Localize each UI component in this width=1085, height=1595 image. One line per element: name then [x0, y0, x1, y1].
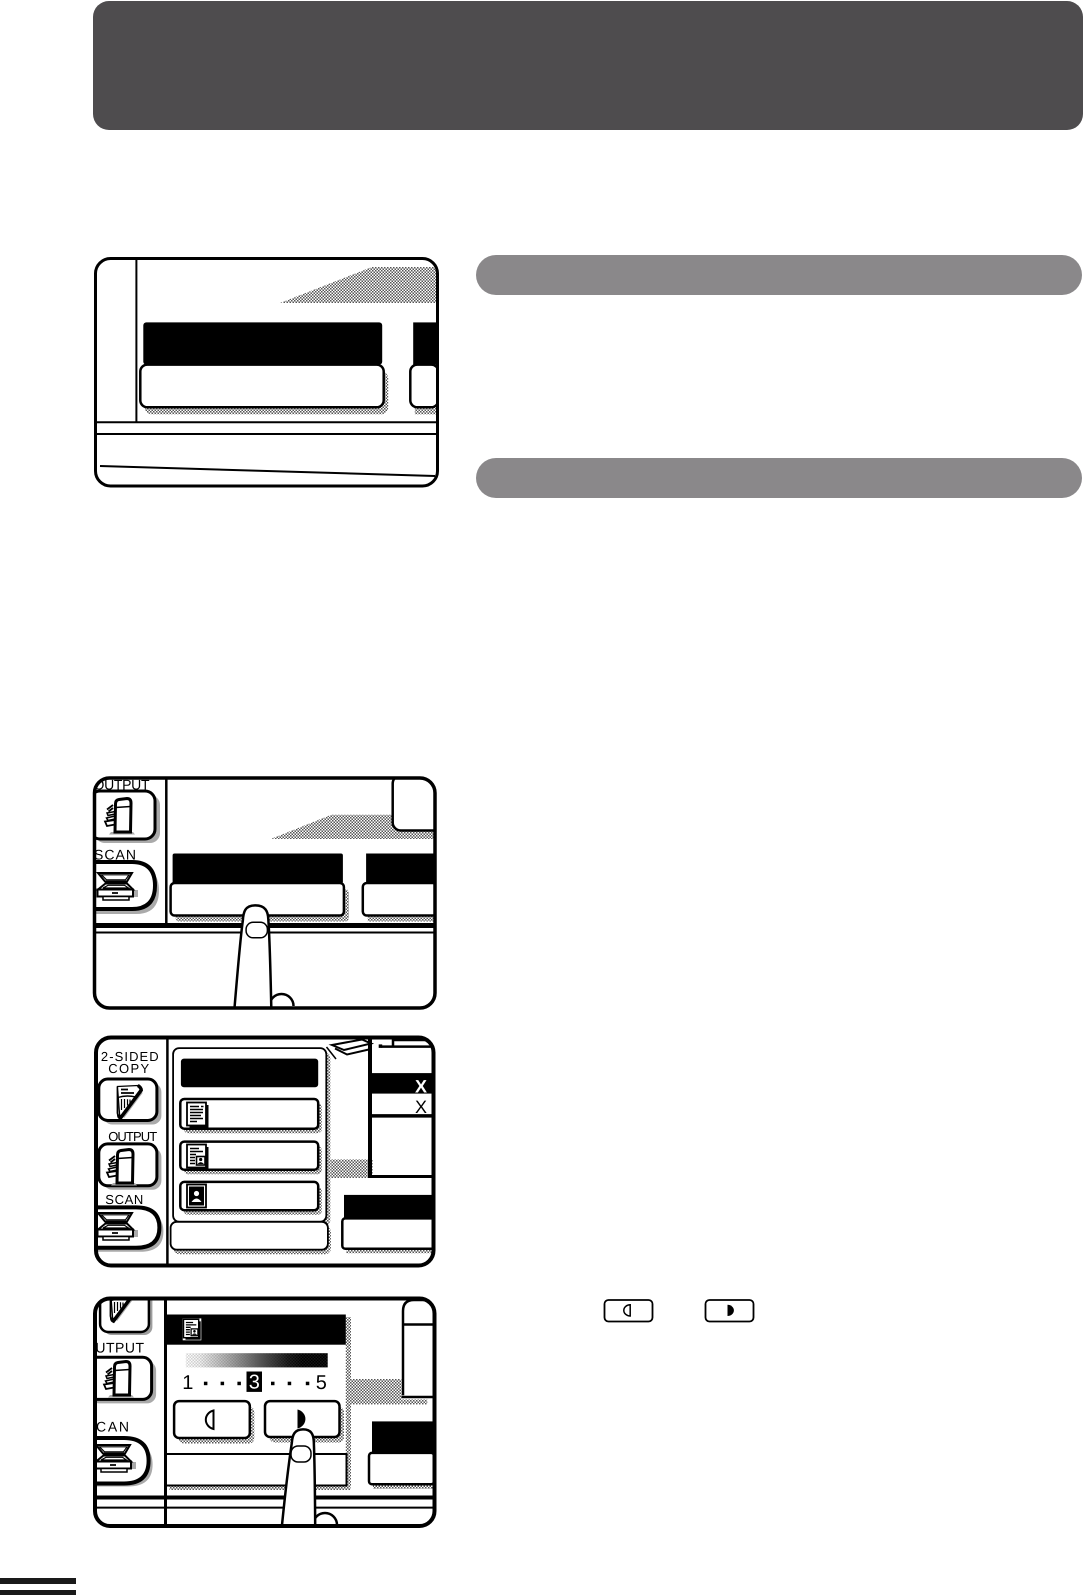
svg-text:OUTPUT: OUTPUT: [108, 1129, 157, 1144]
svg-text:X: X: [415, 1097, 427, 1117]
svg-text:5: 5: [316, 1372, 327, 1394]
svg-text:COPY: COPY: [108, 1061, 149, 1076]
svg-text:SCAN: SCAN: [92, 1418, 129, 1434]
svg-text:X: X: [415, 1077, 427, 1097]
svg-text:OUTPUT: OUTPUT: [92, 1339, 144, 1355]
svg-text:3: 3: [249, 1372, 260, 1394]
svg-text:1: 1: [182, 1372, 193, 1394]
svg-text:SCAN: SCAN: [105, 1192, 143, 1207]
